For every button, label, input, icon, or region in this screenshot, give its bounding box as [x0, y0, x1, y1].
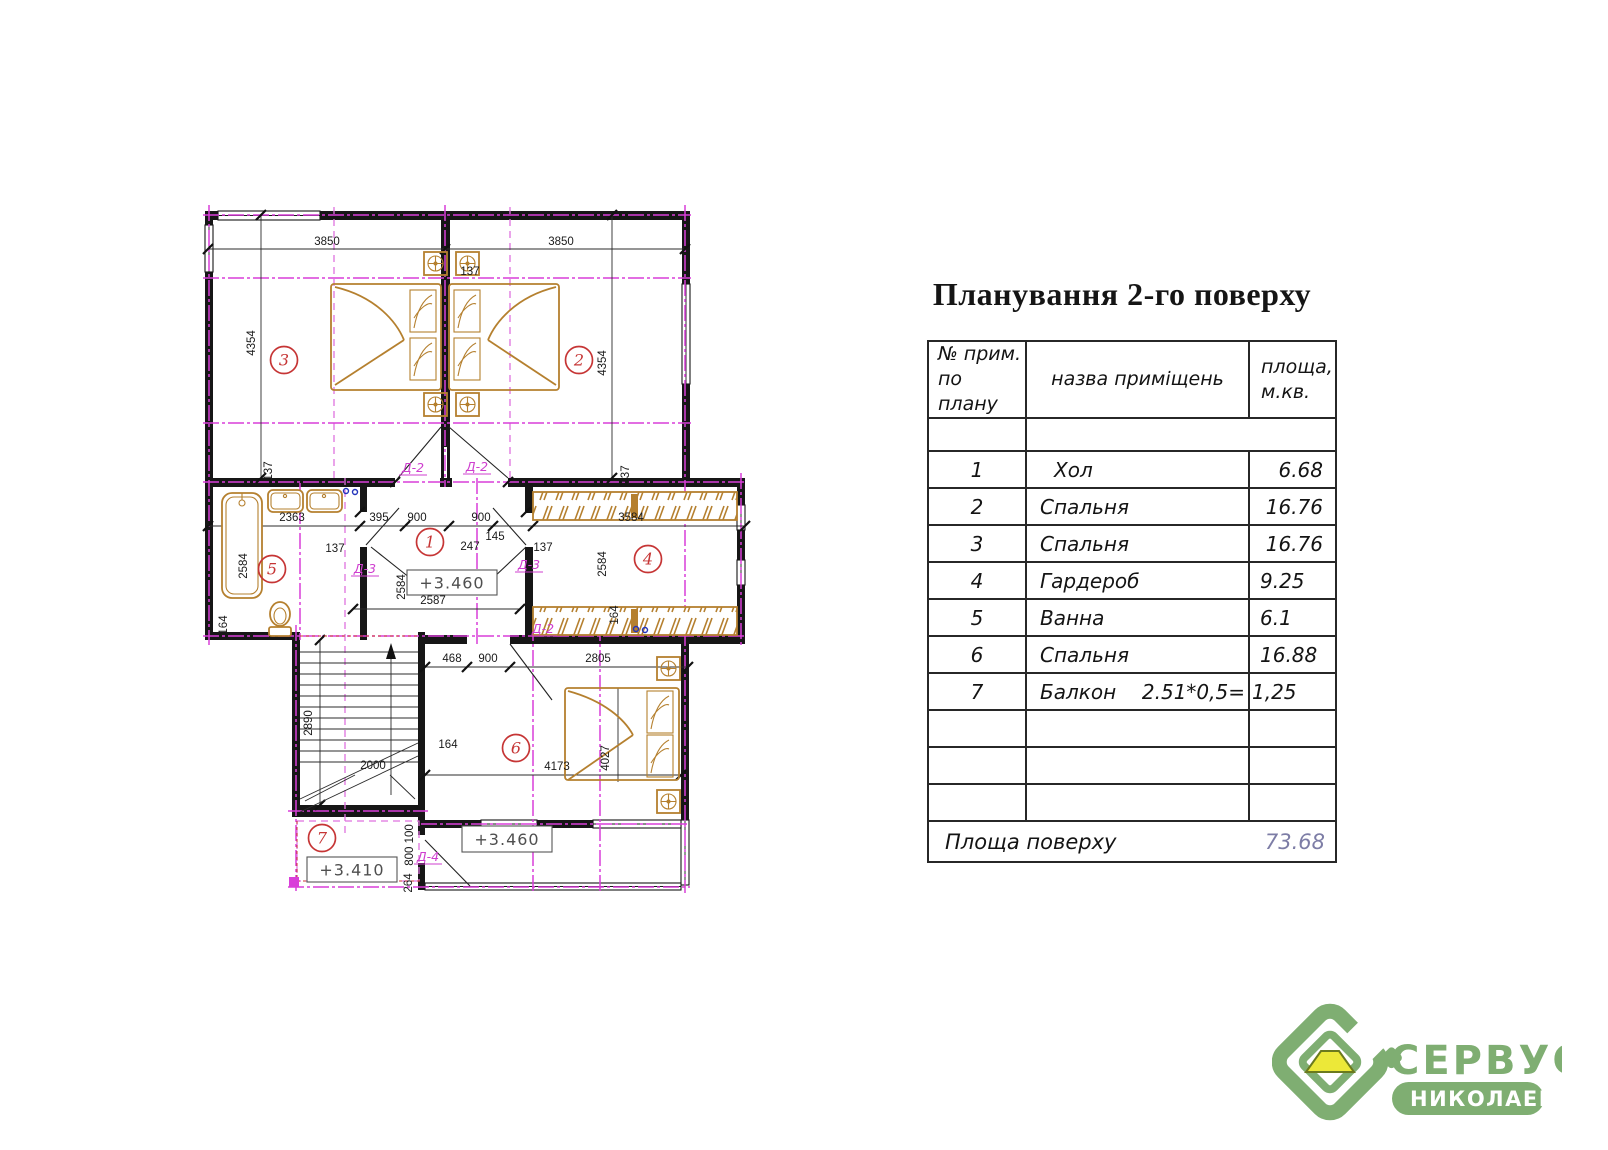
room-number: 4	[928, 562, 1026, 599]
dimension-label: 2363	[279, 512, 305, 524]
floor-plan-drawing: 3850385013743544354137137236339590090035…	[185, 195, 755, 900]
spacer-row	[928, 418, 1336, 451]
dimension-label: 137	[533, 542, 552, 554]
page-title: Планування 2-го поверху	[902, 276, 1342, 313]
room-number-label: 2	[573, 351, 584, 370]
dimension-label: 164	[438, 739, 458, 751]
table-row: 5 Ванна 6.1	[928, 599, 1336, 636]
logo-text-servus: СЕРВУС	[1390, 1038, 1562, 1084]
room-name: Хол	[1026, 451, 1249, 488]
door-label: Д-2	[465, 459, 488, 474]
empty-row	[928, 747, 1336, 784]
rooms-table: № прим. по плану назва приміщень площа, …	[927, 340, 1337, 863]
level-mark-label: +3.410	[319, 861, 384, 880]
room-area: 16.76	[1249, 488, 1336, 525]
total-area-label: Площа поверху	[929, 830, 1116, 854]
empty-cell	[1249, 747, 1336, 784]
logo-diamond-icon	[1273, 998, 1403, 1125]
dimension-label: 900	[471, 512, 490, 524]
header-name: назва приміщень	[1026, 341, 1249, 418]
bathtub	[222, 493, 262, 598]
sinks	[268, 490, 342, 512]
dimension-label: 2587	[420, 595, 446, 607]
dimension-label: 3584	[618, 512, 644, 524]
dimension-label: 2584	[597, 551, 609, 577]
table-header-row: № прим. по плану назва приміщень площа, …	[928, 341, 1336, 418]
dimension-label: 800 100	[404, 824, 416, 866]
dimension-label: 395	[369, 512, 388, 524]
empty-cell	[1026, 747, 1249, 784]
room-number: 1	[928, 451, 1026, 488]
dimension-label: 2805	[585, 653, 611, 665]
dimension-label: 2890	[303, 710, 315, 736]
door-label: Д-2	[531, 621, 554, 636]
toilet	[269, 602, 291, 636]
room-number: 5	[928, 599, 1026, 636]
bed-room3	[331, 284, 441, 390]
dimension-label: 137	[460, 266, 479, 278]
dimension-label: 900	[478, 653, 497, 665]
empty-cell	[1249, 784, 1336, 821]
dimension-label: 145	[485, 531, 504, 543]
room-name: Спальня	[1026, 525, 1249, 562]
servus-logo: СЕРВУС НИКОЛАЕВ	[1272, 998, 1562, 1133]
dimension-label: 137	[263, 461, 275, 480]
stairs	[300, 636, 418, 812]
bed-room2	[449, 284, 559, 390]
room-name-text: Балкон	[1040, 680, 1116, 704]
room-name: Ванна	[1026, 599, 1249, 636]
door-label: Д-4	[416, 849, 439, 864]
table-row: 1 Хол 6.68	[928, 451, 1336, 488]
table-row: 3 Спальня 16.76	[928, 525, 1336, 562]
room-area: 9.25	[1249, 562, 1336, 599]
empty-cell	[1026, 710, 1249, 747]
dimension-label: 3850	[314, 236, 340, 248]
table-row: 6 Спальня 16.88	[928, 636, 1336, 673]
header-number: № прим. по плану	[928, 341, 1026, 418]
servus-logo-drawing: СЕРВУС НИКОЛАЕВ	[1272, 998, 1562, 1133]
empty-cell	[928, 747, 1026, 784]
dimension-label: 137	[620, 465, 632, 484]
table-footer-row: Площа поверху 73.68	[928, 821, 1336, 862]
room-number: 3	[928, 525, 1026, 562]
door-label: Д-2	[401, 460, 424, 475]
dimension-label: 2000	[360, 760, 386, 772]
dimension-label: 164	[218, 615, 230, 635]
room-area: 16.88	[1249, 636, 1336, 673]
empty-cell	[928, 784, 1026, 821]
door-label: Д-3	[353, 561, 376, 576]
room-name: Спальня	[1026, 488, 1249, 525]
level-mark-label: +3.460	[474, 830, 539, 849]
dimension-label: 2584	[396, 574, 408, 600]
door-label: Д-3	[517, 557, 540, 572]
room-number-label: 1	[425, 533, 435, 552]
room-name: Гардероб	[1026, 562, 1249, 599]
empty-cell	[1249, 710, 1336, 747]
table-row: 7 Балкон 2.51*0,5= 1,25	[928, 673, 1336, 710]
room-name: Спальня	[1026, 636, 1249, 673]
room-number-label: 4	[642, 550, 653, 569]
room-number-label: 5	[267, 560, 277, 579]
table-row: 2 Спальня 16.76	[928, 488, 1336, 525]
dimension-label: 264	[403, 873, 415, 893]
room-number: 6	[928, 636, 1026, 673]
level-mark-label: +3.460	[419, 574, 484, 593]
room-area: 6.1	[1249, 599, 1336, 636]
dimension-label: 3850	[548, 236, 574, 248]
empty-row	[928, 710, 1336, 747]
dimension-label: 137	[325, 543, 344, 555]
room-area-formula: 2.51*0,5=	[1142, 680, 1245, 704]
empty-cell	[928, 710, 1026, 747]
empty-cell	[928, 418, 1026, 451]
room-number: 2	[928, 488, 1026, 525]
floor-plan: 3850385013743544354137137236339590090035…	[185, 195, 755, 900]
total-area-value: 73.68	[1265, 830, 1335, 854]
room-area: 16.76	[1249, 525, 1336, 562]
empty-cell	[1249, 418, 1336, 451]
table-row: 4 Гардероб 9.25	[928, 562, 1336, 599]
room-number-label: 3	[279, 351, 289, 370]
logo-text-nikolaev: НИКОЛАЕВ	[1410, 1087, 1556, 1111]
dimension-label: 4027	[600, 745, 612, 771]
plan-labels: 3850385013743544354137137236339590090035…	[218, 236, 662, 893]
header-area: площа, м.кв.	[1249, 341, 1336, 418]
empty-cell	[1026, 784, 1249, 821]
dimension-label: 468	[442, 653, 461, 665]
room-number-label: 6	[511, 739, 521, 758]
dimension-label: 900	[407, 512, 426, 524]
empty-cell	[1026, 418, 1249, 451]
room-area: 6.68	[1249, 451, 1336, 488]
dimension-label: 247	[460, 541, 479, 553]
dimension-label: 4354	[597, 350, 609, 376]
empty-row	[928, 784, 1336, 821]
dimension-label: 4173	[544, 761, 570, 773]
room-name: Балкон 2.51*0,5=	[1026, 673, 1249, 710]
total-area-cell: Площа поверху 73.68	[928, 821, 1336, 862]
dimension-label: 164	[609, 605, 621, 625]
dimension-label: 2584	[238, 553, 250, 579]
dimension-label: 4354	[246, 330, 258, 356]
room-number-label: 7	[317, 829, 328, 848]
bed-room6	[565, 657, 680, 813]
room-area: 1,25	[1249, 673, 1336, 710]
room-number: 7	[928, 673, 1026, 710]
